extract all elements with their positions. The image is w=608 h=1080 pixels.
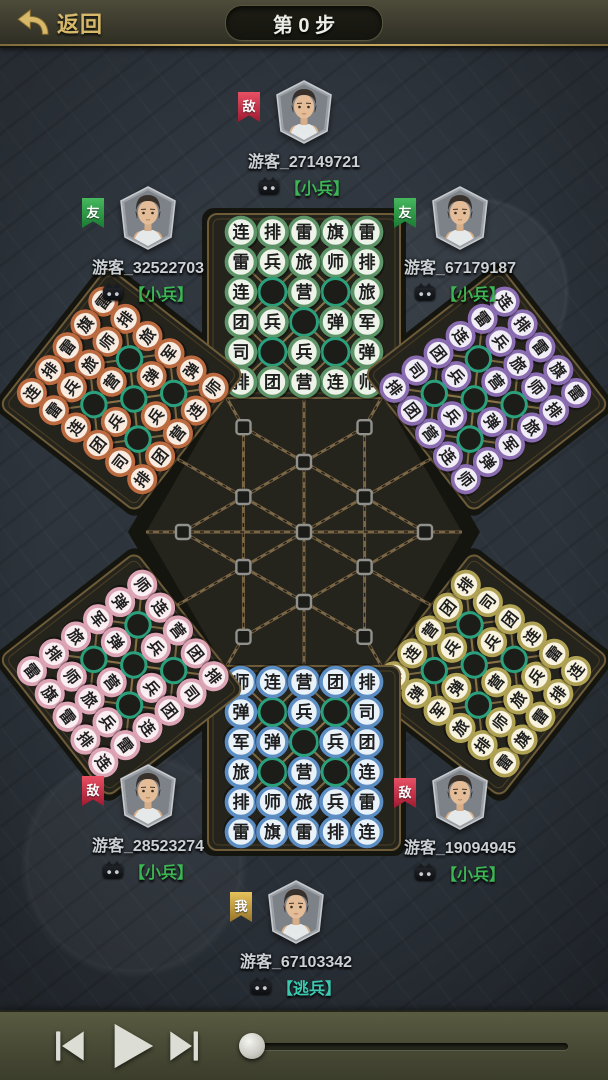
rank-icon xyxy=(103,286,123,300)
player-rank: 【小兵】 xyxy=(372,861,548,885)
svg-text:弹: 弹 xyxy=(327,312,344,332)
relation-badge: 友 xyxy=(82,198,104,228)
svg-text:旅: 旅 xyxy=(296,252,313,272)
svg-text:团: 团 xyxy=(233,313,250,332)
player-card-lower-left: 敌 游客_28523274 【小兵】 xyxy=(60,764,236,883)
board-node xyxy=(358,420,372,434)
slider-track[interactable] xyxy=(248,1043,568,1050)
board-node xyxy=(236,560,250,574)
camp xyxy=(322,699,349,726)
svg-text:兵: 兵 xyxy=(296,342,313,362)
board-node xyxy=(237,630,251,644)
rank-icon xyxy=(251,980,271,994)
player-card-upper-left: 友 游客_32522703 【小兵】 xyxy=(60,186,236,305)
board-node xyxy=(237,420,251,434)
camp xyxy=(291,309,318,336)
svg-text:团: 团 xyxy=(327,673,344,692)
svg-text:旗: 旗 xyxy=(327,222,344,242)
svg-text:弹: 弹 xyxy=(359,342,376,362)
svg-text:营: 营 xyxy=(296,372,313,392)
rank-label: 【小兵】 xyxy=(285,175,349,199)
camp xyxy=(259,759,286,786)
avatar[interactable] xyxy=(272,80,336,144)
board-node xyxy=(418,525,432,539)
svg-text:排: 排 xyxy=(359,672,376,692)
camp xyxy=(322,759,349,786)
svg-text:兵: 兵 xyxy=(296,702,313,722)
board-node xyxy=(297,595,311,609)
skip-next-icon xyxy=(166,1027,204,1065)
player-card-bottom: 我 游客_67103342 【逃兵】 xyxy=(208,880,384,999)
top-bar: 返回 第 0 步 xyxy=(0,0,608,48)
player-name: 游客_67179187 xyxy=(372,254,548,278)
svg-text:排: 排 xyxy=(327,822,344,842)
board-node xyxy=(358,630,372,644)
player-card-upper-right: 友 游客_67179187 【小兵】 xyxy=(372,186,548,305)
player-name: 游客_28523274 xyxy=(60,832,236,856)
svg-text:旗: 旗 xyxy=(264,822,281,842)
player-name: 游客_32522703 xyxy=(60,254,236,278)
svg-text:兵: 兵 xyxy=(264,312,281,332)
rank-icon xyxy=(259,180,279,194)
svg-text:营: 营 xyxy=(296,672,313,692)
relation-badge: 敌 xyxy=(394,778,416,808)
previous-step-button[interactable] xyxy=(50,1027,88,1065)
camp xyxy=(259,339,286,366)
svg-text:弹: 弹 xyxy=(264,732,281,752)
rank-label: 【逃兵】 xyxy=(277,975,341,999)
player-rank: 【小兵】 xyxy=(372,281,548,305)
player-rank: 【小兵】 xyxy=(60,281,236,305)
camp xyxy=(259,279,286,306)
rank-icon xyxy=(415,286,435,300)
board-node xyxy=(358,560,372,574)
step-counter-label: 第 0 步 xyxy=(273,9,335,38)
svg-text:司: 司 xyxy=(233,343,250,362)
avatar[interactable] xyxy=(428,766,492,830)
svg-text:雷: 雷 xyxy=(296,223,313,242)
svg-text:雷: 雷 xyxy=(296,823,313,842)
svg-text:团: 团 xyxy=(264,373,281,392)
svg-text:连: 连 xyxy=(327,372,345,392)
svg-text:军: 军 xyxy=(233,733,250,752)
rank-label: 【小兵】 xyxy=(129,859,193,883)
svg-text:连: 连 xyxy=(264,672,282,692)
rank-label: 【小兵】 xyxy=(129,281,193,305)
play-button[interactable] xyxy=(106,1020,156,1072)
player-rank: 【逃兵】 xyxy=(208,975,384,999)
play-icon xyxy=(106,1020,156,1072)
avatar[interactable] xyxy=(264,880,328,944)
back-label: 返回 xyxy=(57,7,103,39)
svg-text:司: 司 xyxy=(359,703,376,722)
back-arrow-icon xyxy=(16,8,52,38)
board-node xyxy=(176,525,190,539)
relation-badge: 我 xyxy=(230,892,252,922)
playback-bar xyxy=(0,1010,608,1080)
player-card-top: 敌 游客_27149721 【小兵】 xyxy=(216,80,392,199)
relation-badge: 敌 xyxy=(82,776,104,806)
svg-text:兵: 兵 xyxy=(327,792,344,812)
skip-previous-icon xyxy=(50,1027,88,1065)
player-name: 游客_19094945 xyxy=(372,834,548,858)
step-counter: 第 0 步 xyxy=(225,5,383,41)
avatar[interactable] xyxy=(116,764,180,828)
board-node xyxy=(236,490,250,504)
rank-label: 【小兵】 xyxy=(441,861,505,885)
avatar[interactable] xyxy=(116,186,180,250)
player-card-lower-right: 敌 游客_19094945 【小兵】 xyxy=(372,766,548,885)
svg-text:兵: 兵 xyxy=(264,252,281,272)
player-name: 游客_27149721 xyxy=(216,148,392,172)
rank-label: 【小兵】 xyxy=(441,281,505,305)
board-node xyxy=(358,490,372,504)
svg-text:旅: 旅 xyxy=(296,792,313,812)
player-rank: 【小兵】 xyxy=(216,175,392,199)
svg-text:兵: 兵 xyxy=(327,732,344,752)
svg-text:营: 营 xyxy=(296,282,313,302)
rank-icon xyxy=(103,864,123,878)
slider-thumb[interactable] xyxy=(239,1033,265,1059)
relation-badge: 敌 xyxy=(238,92,260,122)
board-node xyxy=(297,455,311,469)
camp xyxy=(322,279,349,306)
svg-text:弹: 弹 xyxy=(233,702,250,722)
svg-text:师: 师 xyxy=(264,792,281,812)
relation-badge: 友 xyxy=(394,198,416,228)
camp xyxy=(291,729,318,756)
camp xyxy=(322,339,349,366)
back-button[interactable]: 返回 xyxy=(10,0,109,46)
replay-screen: 雷旗雷排连排师旅兵雷旅营连军弹兵团弹兵司师连营团排雷旗雷排连排师旅兵雷旅营连军弹… xyxy=(0,0,608,1080)
player-name: 游客_67103342 xyxy=(208,948,384,972)
svg-text:排: 排 xyxy=(264,222,281,242)
rank-icon xyxy=(415,866,435,880)
avatar[interactable] xyxy=(428,186,492,250)
next-step-button[interactable] xyxy=(166,1027,204,1065)
svg-text:师: 师 xyxy=(327,252,344,272)
camp xyxy=(259,699,286,726)
svg-text:营: 营 xyxy=(296,762,313,782)
svg-text:团: 团 xyxy=(359,733,376,752)
progress-slider[interactable] xyxy=(238,1012,582,1080)
board-node xyxy=(297,525,311,539)
svg-text:军: 军 xyxy=(359,313,376,332)
